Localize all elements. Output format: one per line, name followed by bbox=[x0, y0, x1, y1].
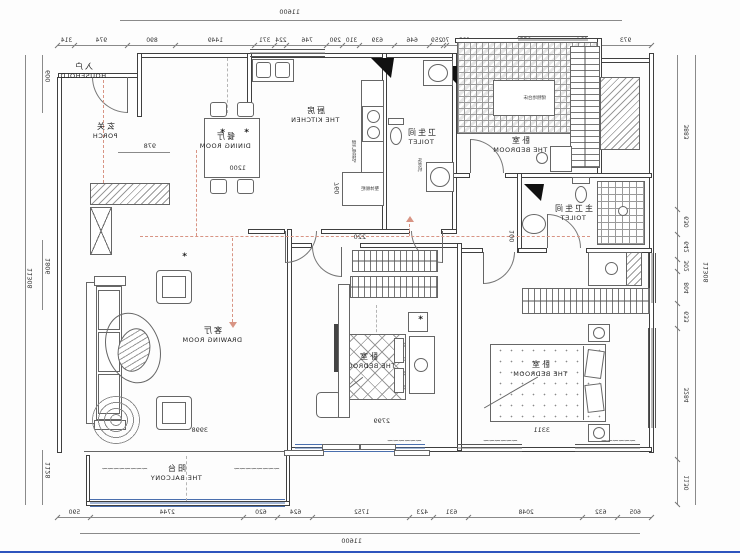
wall bbox=[248, 229, 285, 234]
kitchen-dim: 760 bbox=[333, 182, 341, 194]
dimension-segment: 1130 bbox=[677, 460, 678, 505]
wall-thin bbox=[84, 451, 290, 452]
sliding-door-panel bbox=[284, 450, 324, 456]
dimension-segment: 371 bbox=[255, 45, 275, 46]
wardrobe-hangers bbox=[350, 276, 438, 298]
balcony-wall bbox=[286, 455, 290, 505]
window bbox=[575, 444, 640, 452]
dimension-segment: 590 bbox=[58, 517, 91, 518]
sliding-door-panel bbox=[322, 444, 360, 450]
dimension-segment: 630 bbox=[677, 210, 678, 235]
dimension-segment: 639 bbox=[360, 45, 395, 46]
bed-mid-dim: 2799 bbox=[373, 417, 390, 425]
dimension-segment: 290 bbox=[327, 45, 343, 46]
dimension-segment: 746 bbox=[287, 45, 327, 46]
bath-dim: 100 bbox=[508, 230, 516, 242]
dimension-segment: 974 bbox=[75, 45, 128, 46]
wall bbox=[518, 248, 547, 253]
dimension-segment: 224 bbox=[275, 45, 287, 46]
wardrobe-hangers bbox=[522, 288, 650, 314]
headboard-line bbox=[583, 346, 584, 420]
hall-dim: 220 bbox=[354, 233, 366, 241]
dimension-segment: 1449 bbox=[176, 45, 255, 46]
sofa-armrest bbox=[94, 276, 126, 286]
floorplan-sheet: 9736241551623702596466393102907462243711… bbox=[0, 0, 740, 555]
balcony-wall bbox=[86, 455, 90, 505]
wardrobe-hangers bbox=[352, 250, 438, 272]
bedroom-left-label: 卧室 THE BEDROOM bbox=[492, 360, 588, 378]
wall bbox=[441, 229, 457, 234]
door-arc bbox=[312, 247, 342, 277]
master-toilet-label: 主卫生间 TOILET bbox=[544, 204, 602, 222]
curtain-squiggle: ~~~~~~ bbox=[484, 436, 518, 445]
porch-label: 玄关 PORCH bbox=[76, 122, 134, 140]
side-total-dim-line bbox=[695, 55, 696, 505]
bed-left-dim: 3311 bbox=[533, 426, 550, 434]
door-leaf bbox=[341, 247, 342, 277]
door-arc bbox=[483, 252, 515, 284]
plant: * bbox=[182, 252, 187, 262]
boiler-label: 燃气壁挂炉 bbox=[352, 140, 358, 163]
sheet-frame-line bbox=[0, 551, 740, 553]
dimension-segment: 632 bbox=[583, 517, 618, 518]
wall bbox=[57, 77, 62, 453]
curtain-squiggle: ~~~~~~ bbox=[602, 436, 636, 445]
corridor-guide-line bbox=[231, 238, 233, 322]
dimension-segment: 423 bbox=[410, 517, 434, 518]
dimension-segment: 620 bbox=[244, 517, 279, 518]
shoe-bench bbox=[90, 183, 170, 205]
dimension-segment: 631 bbox=[434, 517, 469, 518]
sink-basin bbox=[275, 62, 290, 78]
stove-burner bbox=[367, 126, 380, 139]
living-dim: 3998 bbox=[191, 426, 208, 434]
tv bbox=[334, 324, 338, 372]
wall bbox=[598, 58, 652, 63]
balcony-side-dim: 1128 bbox=[44, 462, 52, 479]
dimension-segment: 890 bbox=[128, 45, 176, 46]
household-label: 入户 HOUSEHOLD bbox=[52, 62, 114, 80]
desk-hatch bbox=[626, 252, 642, 286]
kitchen-cabinet: 整体橱柜 bbox=[342, 172, 384, 206]
bedroom-top-label: 卧室 THE BEDROOM bbox=[468, 136, 572, 154]
dining-dim: 1200 bbox=[229, 164, 246, 172]
dimension-segment: 259 bbox=[430, 45, 444, 46]
porch-dim: 978 bbox=[144, 142, 156, 150]
porch-side-dim-line bbox=[42, 55, 43, 113]
wall bbox=[360, 243, 460, 248]
dimension-segment: 1752 bbox=[313, 517, 411, 518]
side-dimension-chain: 388363064230280463332841130 bbox=[674, 55, 684, 505]
dimension-segment: 3284 bbox=[677, 329, 678, 460]
window bbox=[250, 49, 325, 57]
dimension-segment: 624 bbox=[278, 517, 313, 518]
dining-label: 餐厅 DINING ROOM bbox=[187, 132, 263, 150]
pillow bbox=[584, 383, 604, 413]
wardrobe-hangers bbox=[570, 46, 600, 168]
sink-basin bbox=[256, 62, 271, 78]
mirrored-drawing-layer: 9736241551623702596466393102907462243711… bbox=[0, 0, 740, 555]
porch-side-dim: 600 bbox=[44, 70, 52, 82]
built-in-closet bbox=[600, 77, 640, 150]
stove-burner bbox=[367, 110, 380, 123]
shower-head bbox=[618, 206, 628, 216]
dining-chair bbox=[210, 102, 227, 117]
curtain-squiggle: ~~~~~~ bbox=[388, 436, 422, 445]
dimension-segment: 310 bbox=[343, 45, 360, 46]
desk-chair bbox=[414, 358, 428, 372]
dining-chair bbox=[237, 102, 254, 117]
washer-label: 洗衣机 bbox=[418, 158, 424, 172]
column-mark bbox=[371, 58, 394, 81]
nightstand-lamp bbox=[593, 327, 605, 339]
dimension-segment: 642 bbox=[677, 235, 678, 261]
toilet-tank bbox=[388, 118, 404, 125]
dimension-segment: 804 bbox=[677, 272, 678, 304]
cabinet-label: 整体橱柜 bbox=[361, 186, 379, 192]
dimension-segment: 973 bbox=[599, 45, 652, 46]
window bbox=[457, 444, 522, 452]
dimension-segment: 302 bbox=[677, 260, 678, 272]
wall bbox=[453, 173, 470, 178]
living-side-dim: 1806 bbox=[44, 258, 52, 275]
desk-chair bbox=[605, 262, 618, 275]
sliding-door-panel bbox=[394, 450, 430, 456]
dimension-segment: 3883 bbox=[677, 55, 678, 210]
guide-arrow-up bbox=[406, 216, 414, 222]
curtain-squiggle: ~~~~~~~~ bbox=[102, 464, 148, 473]
porch-dim-line bbox=[118, 152, 170, 153]
dimension-segment: 646 bbox=[395, 45, 430, 46]
outer-side-dim: 11308 bbox=[26, 268, 34, 289]
top-total-dim: 11600 bbox=[279, 8, 300, 16]
top-total-dim-line bbox=[120, 20, 622, 21]
column-mark bbox=[524, 184, 544, 204]
door-leaf bbox=[483, 252, 484, 284]
washing-machine-drum bbox=[430, 167, 450, 187]
dining-chair bbox=[210, 179, 227, 194]
window bbox=[648, 328, 656, 428]
dimension-segment: 70 bbox=[444, 45, 448, 46]
entry-door-arc bbox=[92, 77, 128, 113]
hall-cabinet bbox=[90, 207, 112, 255]
corridor-guide-line bbox=[408, 224, 410, 236]
dining-chair bbox=[237, 179, 254, 194]
dimension-segment: 605 bbox=[618, 517, 652, 518]
entry-door-leaf bbox=[127, 77, 128, 113]
corridor-guide-line bbox=[195, 150, 197, 236]
tv-cabinet bbox=[338, 284, 350, 418]
armchair-seat bbox=[162, 276, 186, 298]
round-rug bbox=[92, 396, 140, 444]
toilet-label: 卫生间 TOILET bbox=[390, 128, 452, 146]
dimension-segment: 2048 bbox=[469, 517, 583, 518]
washbasin bbox=[428, 64, 448, 82]
bottom-dimension-chain: 605632204863142317526246202744590 bbox=[58, 510, 652, 520]
bottom-total-dim: 11600 bbox=[341, 537, 362, 545]
center-line bbox=[375, 305, 377, 337]
toilet-bowl bbox=[575, 186, 587, 203]
dimension-segment: 2744 bbox=[91, 517, 244, 518]
wall bbox=[137, 53, 142, 117]
dimension-segment: 633 bbox=[677, 304, 678, 329]
platform-text-frame: 储物地台床 bbox=[493, 80, 555, 116]
pillow bbox=[394, 368, 404, 393]
curtain-squiggle: ~~~~~~~~ bbox=[234, 464, 280, 473]
drawing-room-label: 客厅 DRAWING ROOM bbox=[162, 326, 262, 344]
balcony-side-dim-line bbox=[42, 450, 43, 505]
living-side-dim-line bbox=[42, 240, 43, 310]
washbasin bbox=[522, 214, 546, 234]
side-total-dim: 11308 bbox=[702, 262, 710, 283]
balcony-window bbox=[90, 499, 285, 507]
wall bbox=[457, 243, 462, 451]
toilet-tank bbox=[572, 177, 590, 184]
dimension-segment: 314 bbox=[58, 45, 75, 46]
platform-label: 储物地台床 bbox=[524, 95, 547, 101]
kitchen-label: 厨房 THE KITCHEN bbox=[272, 106, 358, 124]
nightstand-plant: * bbox=[418, 315, 423, 325]
wall bbox=[517, 173, 522, 253]
bottom-total-dim-line bbox=[80, 533, 640, 534]
armchair-seat bbox=[162, 402, 186, 424]
